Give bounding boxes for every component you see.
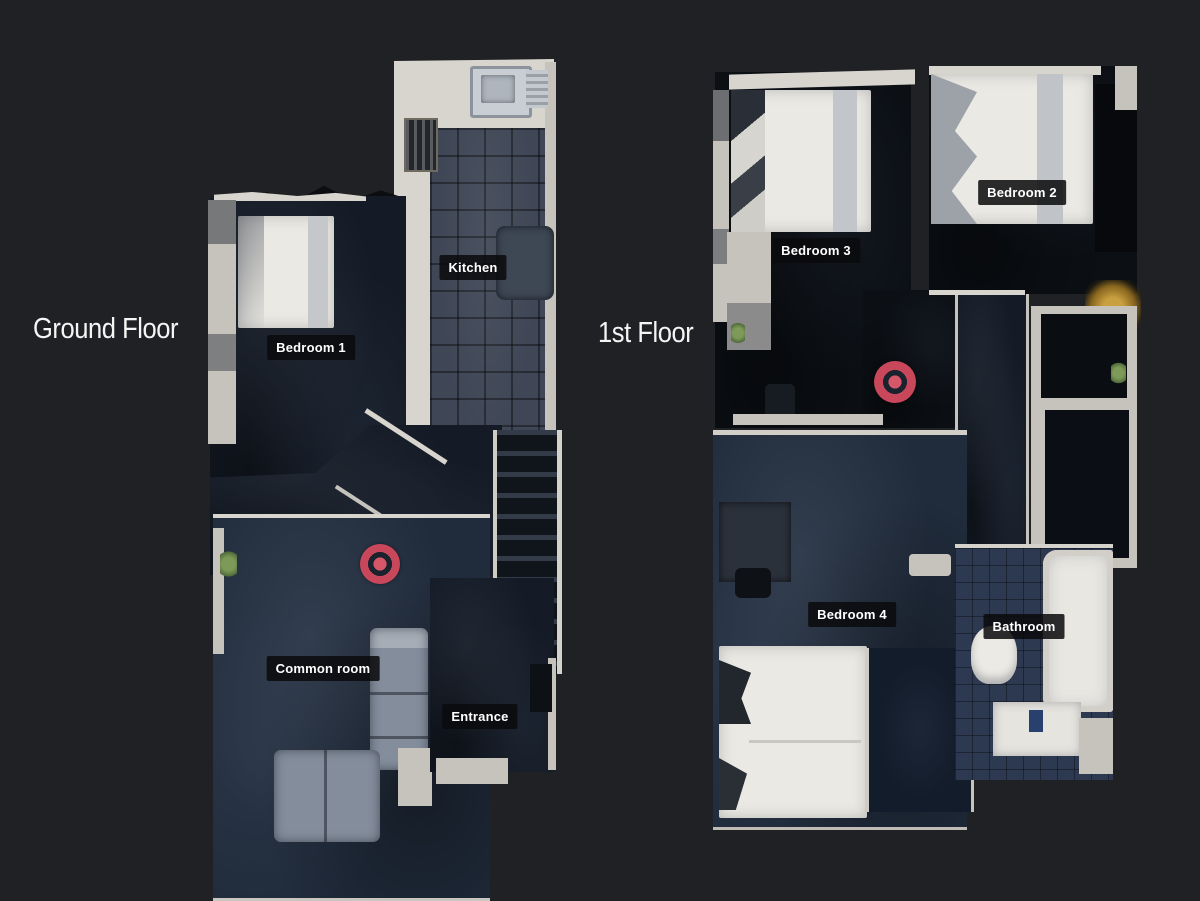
bed-drape <box>931 74 977 224</box>
room-label-bedroom4: Bedroom 4 <box>808 602 896 627</box>
ground-floor-plan[interactable]: Kitchen Bedroom 1 Common room Entrance <box>208 58 560 840</box>
sink-drainer <box>526 70 548 108</box>
entrance-door-shadow <box>530 664 552 712</box>
floorplan-view: Ground Floor 1st Floor <box>0 0 1200 900</box>
sink-counter <box>993 702 1081 756</box>
bed-pillows <box>731 90 765 232</box>
bedroom4-chair <box>735 568 771 598</box>
floor-title-ground: Ground Floor <box>33 313 178 346</box>
bedroom1-left-wall <box>208 200 236 444</box>
bathroom-corner-wall <box>1079 718 1113 774</box>
sink-basin <box>481 75 515 103</box>
room-label-bedroom3: Bedroom 3 <box>772 238 860 263</box>
scan-position-marker-icon[interactable] <box>360 544 400 584</box>
plant-icon <box>731 322 745 344</box>
common-room-floor-patch <box>398 748 432 806</box>
bedroom4-bed <box>719 646 867 818</box>
room-label-bedroom2: Bedroom 2 <box>978 180 1066 205</box>
bed-blanket-band <box>308 216 328 328</box>
room-label-entrance: Entrance <box>442 704 517 729</box>
stairwell-dark-upper <box>1041 314 1127 398</box>
bath-item <box>1029 710 1043 732</box>
kitchen-sink-icon <box>470 66 532 118</box>
bedroom1-top-wall <box>214 192 366 201</box>
first-floor-plan[interactable]: Bedroom 3 Bedroom 2 Bedroom 4 Bathroom <box>713 66 1137 846</box>
floor-title-first: 1st Floor <box>598 317 693 350</box>
plant-icon <box>1111 362 1126 384</box>
bedroom3-bed <box>731 90 871 232</box>
bed-crease <box>749 740 861 743</box>
room-label-bathroom: Bathroom <box>984 614 1065 639</box>
bedroom2-corner-wall <box>1115 66 1137 110</box>
plant-icon <box>220 550 237 578</box>
room-label-bedroom1: Bedroom 1 <box>267 335 355 360</box>
room-label-common-room: Common room <box>267 656 380 681</box>
bed-fold-shadow <box>719 758 747 810</box>
bedroom3-bottom-wall <box>733 414 883 425</box>
room-label-kitchen: Kitchen <box>439 255 506 280</box>
bed-pillows <box>238 216 264 328</box>
bed-blanket-band <box>833 90 857 232</box>
bedroom4-white-cushion <box>909 554 951 576</box>
sofa-bottom <box>274 750 380 842</box>
bed-pillows <box>719 660 751 724</box>
common-room-left-wall <box>213 528 224 654</box>
landing-top-wall <box>929 290 1025 295</box>
scan-position-marker-icon[interactable] <box>874 361 916 403</box>
entrance-floor-white <box>436 758 508 784</box>
stove-icon <box>404 118 438 172</box>
bedroom1-bed <box>238 216 334 328</box>
stairwell-dark-lower <box>1045 410 1129 558</box>
